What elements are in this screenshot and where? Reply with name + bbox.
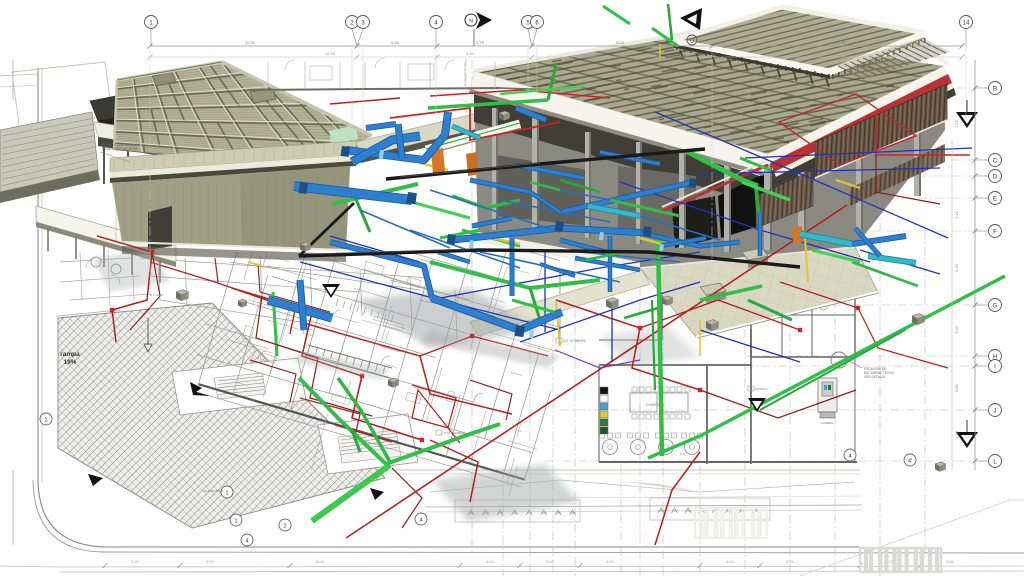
svg-text:N.T.+1.20: N.T.+1.20 (150, 293, 163, 297)
svg-text:5.00: 5.00 (486, 559, 495, 564)
svg-text:CUARTO: CUARTO (755, 387, 768, 391)
svg-text:4: 4 (245, 538, 248, 544)
svg-text:E: E (993, 197, 997, 203)
svg-text:S.S.: S.S. (680, 452, 686, 456)
svg-text:F: F (993, 230, 997, 236)
svg-text:4: 4 (848, 453, 851, 459)
svg-text:5.00: 5.00 (546, 559, 555, 564)
svg-text:5.00: 5.00 (131, 559, 140, 564)
svg-text:4: 4 (419, 517, 422, 523)
svg-text:1: 1 (234, 518, 237, 524)
svg-text:5.36: 5.36 (954, 263, 959, 272)
svg-text:rampa: rampa (60, 351, 80, 358)
svg-text:1.40: 1.40 (954, 430, 959, 439)
svg-text:2: 2 (44, 417, 47, 423)
svg-text:2.11: 2.11 (954, 210, 959, 218)
svg-text:N: N (469, 19, 473, 25)
svg-text:CUADRO: CUADRO (820, 421, 834, 425)
svg-text:5.00: 5.00 (726, 559, 735, 564)
svg-text:5.46: 5.46 (391, 40, 400, 45)
svg-text:3.00: 3.00 (954, 325, 959, 334)
svg-text:5.00: 5.00 (946, 559, 955, 564)
svg-text:12.49: 12.49 (325, 52, 335, 56)
svg-text:S.S. HOMBRES: S.S. HOMBRES (563, 339, 586, 343)
svg-text:5.00: 5.00 (316, 559, 325, 564)
svg-text:2.75: 2.75 (476, 40, 485, 45)
svg-text:12.02: 12.02 (245, 40, 256, 45)
svg-text:G: G (993, 304, 998, 310)
svg-text:2.92: 2.92 (954, 119, 959, 128)
svg-text:5.04: 5.04 (616, 40, 625, 45)
svg-text:14: 14 (963, 21, 970, 27)
svg-text:2: 2 (283, 523, 286, 529)
svg-text:J: J (994, 409, 997, 415)
svg-text:5.80: 5.80 (954, 383, 959, 392)
svg-text:4': 4' (908, 458, 912, 464)
svg-text:19%: 19% (63, 359, 76, 366)
svg-text:5.30: 5.30 (596, 52, 603, 56)
svg-text:B: B (993, 87, 997, 93)
svg-text:CTO BOMBEO: CTO BOMBEO (444, 431, 465, 435)
svg-text:C: C (993, 159, 998, 165)
svg-text:52.08: 52.08 (835, 40, 846, 45)
svg-text:5.00: 5.00 (206, 559, 215, 564)
svg-text:PLANTA BAJA: PLANTA BAJA (204, 489, 224, 493)
svg-text:REVESTIDO VEGETAL: REVESTIDO VEGETAL (102, 147, 138, 151)
svg-text:5.00: 5.00 (786, 559, 795, 564)
svg-text:U: U (690, 39, 694, 45)
svg-text:VER DETALLE: VER DETALLE (864, 375, 885, 379)
svg-text:4.84: 4.84 (466, 52, 473, 56)
svg-text:1: 1 (225, 490, 228, 496)
svg-text:D: D (993, 175, 998, 181)
svg-text:5.00: 5.00 (606, 559, 615, 564)
